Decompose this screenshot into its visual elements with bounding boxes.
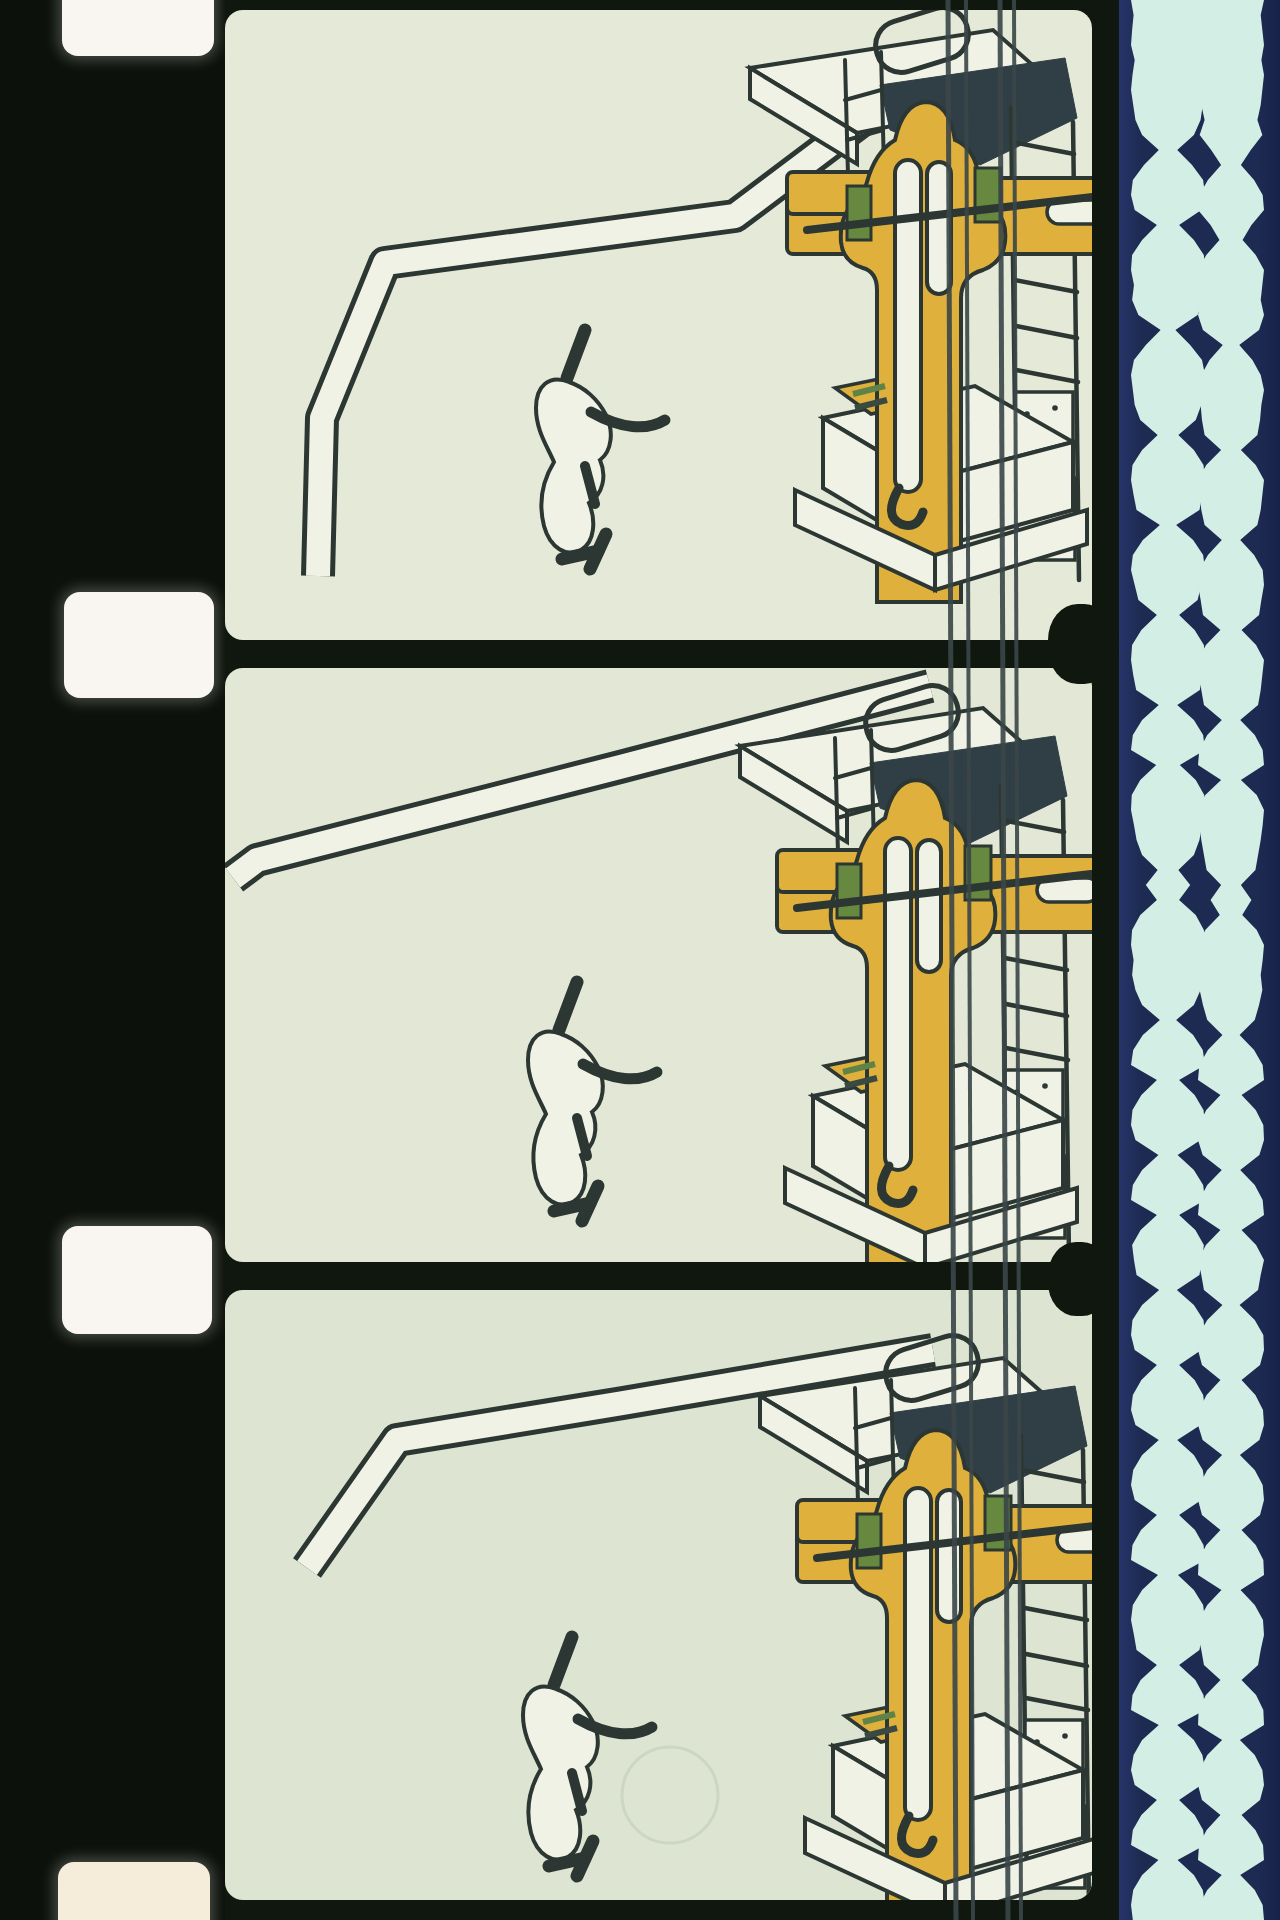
cursive-scribble — [528, 982, 657, 1221]
film-frame-3 — [225, 1290, 1092, 1900]
film-strip — [0, 0, 1280, 1920]
film-frame-2 — [225, 668, 1092, 1262]
sprocket-perforation — [58, 1862, 210, 1920]
sprocket-perforation — [64, 592, 214, 698]
cursive-scribble — [536, 330, 665, 569]
film-edge-left — [0, 0, 225, 1920]
waveform-track — [1198, 0, 1264, 1920]
frames-area — [225, 0, 1119, 1920]
sprocket-perforation — [62, 0, 214, 56]
faint-scratch-circle — [622, 1747, 718, 1843]
film-strip-scan: { "scene": { "kind": "16mm film strip sc… — [0, 0, 1280, 1920]
film-frame-1 — [225, 10, 1092, 640]
cursive-scribble — [523, 1637, 652, 1876]
optical-soundtrack — [1119, 0, 1280, 1920]
soundtrack-waveform — [1119, 0, 1280, 1920]
frame-boundary-blob — [1048, 1242, 1110, 1316]
frame-boundary-blob — [1048, 604, 1114, 684]
sprocket-perforation — [62, 1226, 212, 1334]
waveform-track — [1131, 0, 1205, 1920]
